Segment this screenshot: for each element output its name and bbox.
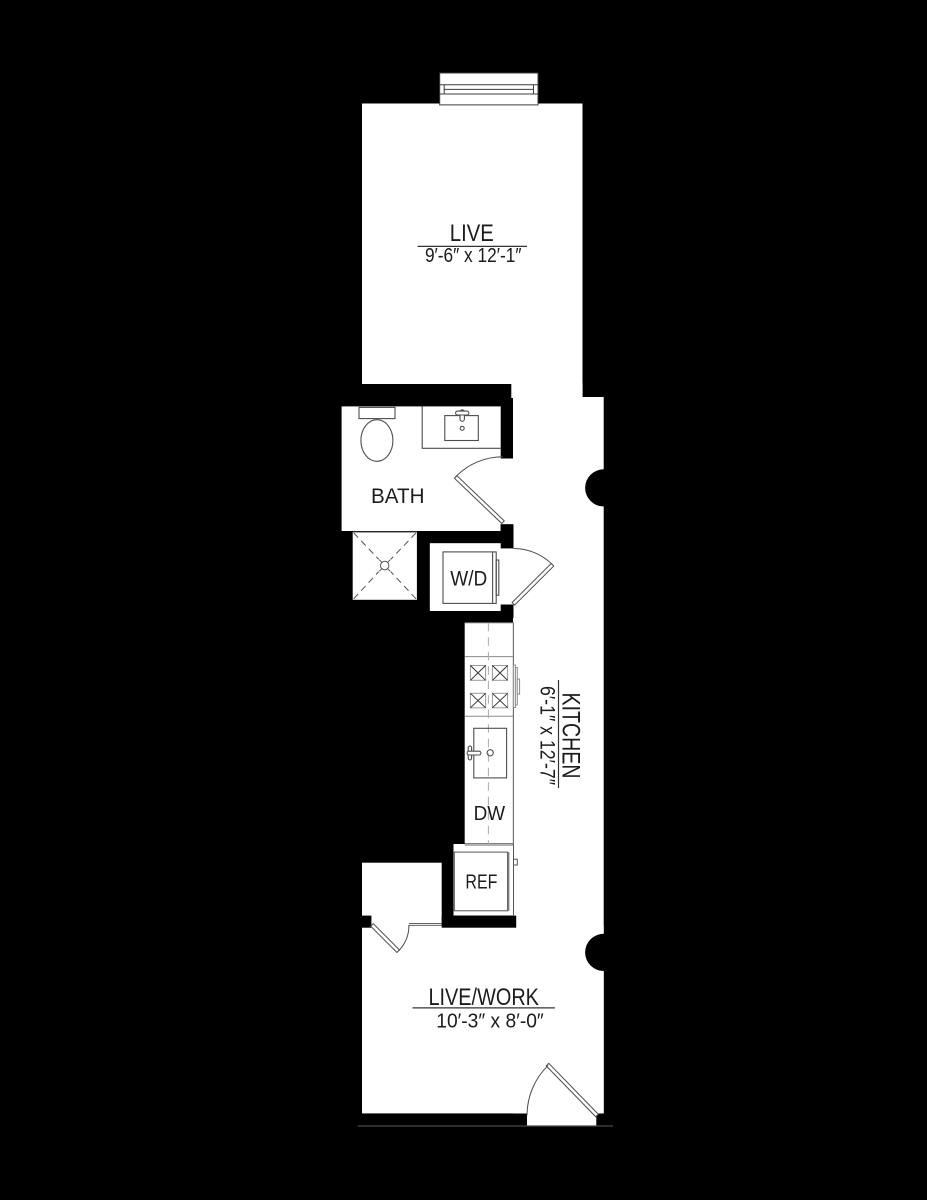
- svg-text:W/D: W/D: [450, 567, 487, 590]
- svg-text:LIVE: LIVE: [450, 220, 494, 247]
- svg-text:10′-3″ x 8′-0″: 10′-3″ x 8′-0″: [436, 1010, 544, 1032]
- svg-text:DW: DW: [474, 802, 506, 825]
- svg-text:KITCHEN: KITCHEN: [557, 693, 585, 779]
- svg-text:9′-6″ x 12′-1″: 9′-6″ x 12′-1″: [425, 245, 522, 267]
- svg-text:BATH: BATH: [371, 484, 425, 508]
- svg-text:6′-1″ x 12′-7″: 6′-1″ x 12′-7″: [536, 686, 559, 785]
- svg-text:LIVE/WORK: LIVE/WORK: [428, 984, 539, 1011]
- svg-text:REF: REF: [465, 870, 497, 893]
